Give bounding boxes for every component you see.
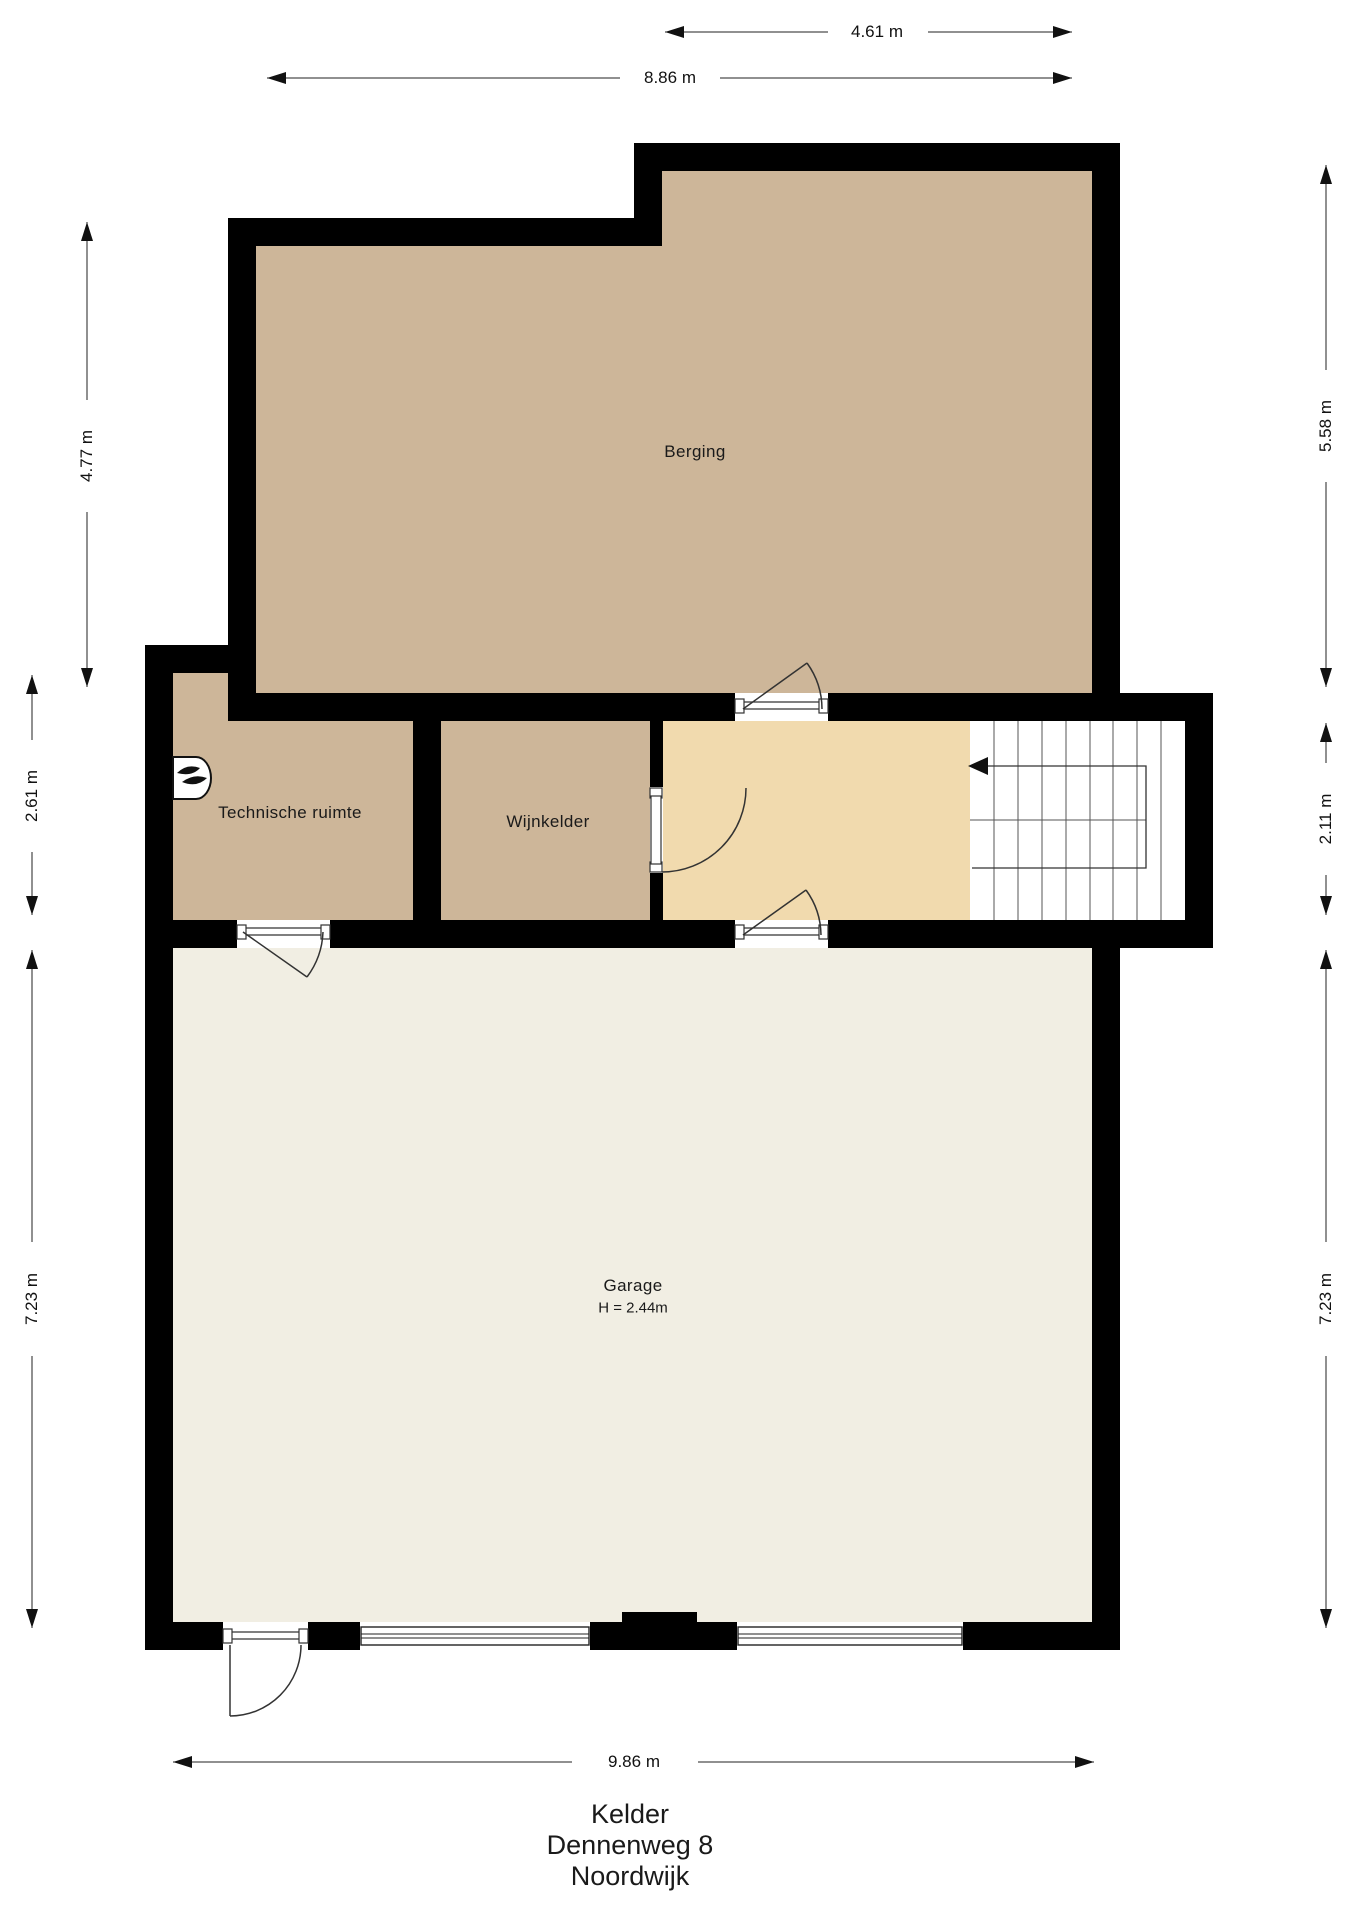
dim-left-lower: 7.23 m [22, 1270, 42, 1328]
window-garage-right [738, 1627, 962, 1645]
title-address: Dennenweg 8 [430, 1830, 830, 1861]
dim-top-full: 8.86 m [641, 68, 699, 88]
door-wijnkelder-hal [650, 788, 746, 872]
title-block: Kelder Dennenweg 8 Noordwijk [430, 1799, 830, 1892]
stairs-walkline [968, 757, 1146, 868]
arrow-left-icon [968, 757, 988, 775]
floorplan-kelder: Berging Technische ruimte Wijnkelder Gar… [0, 0, 1358, 1920]
title-floor: Kelder [430, 1799, 830, 1830]
label-berging: Berging [664, 442, 725, 462]
title-city: Noordwijk [430, 1861, 830, 1892]
dim-left-middle: 2.61 m [22, 767, 42, 825]
window-garage-left [361, 1627, 589, 1645]
dim-right-middle: 2.11 m [1316, 791, 1336, 848]
dim-top-partial: 4.61 m [848, 22, 906, 42]
dim-right-upper: 5.58 m [1316, 397, 1336, 455]
dim-bottom: 9.86 m [605, 1752, 663, 1772]
linework-overlay [0, 0, 1358, 1920]
door-garage-exterior [223, 1629, 308, 1716]
door-berging-hal [735, 663, 828, 713]
label-garage: Garage [603, 1276, 662, 1296]
dim-right-lower: 7.23 m [1316, 1270, 1336, 1328]
door-hal-garage [735, 890, 828, 939]
door-technische-garage [237, 925, 330, 977]
dim-left-upper: 4.77 m [77, 427, 97, 485]
stairs-treads [970, 721, 1161, 920]
label-garage-height: H = 2.44m [598, 1300, 668, 1317]
label-technische: Technische ruimte [218, 803, 362, 823]
label-wijnkelder: Wijnkelder [506, 812, 589, 832]
